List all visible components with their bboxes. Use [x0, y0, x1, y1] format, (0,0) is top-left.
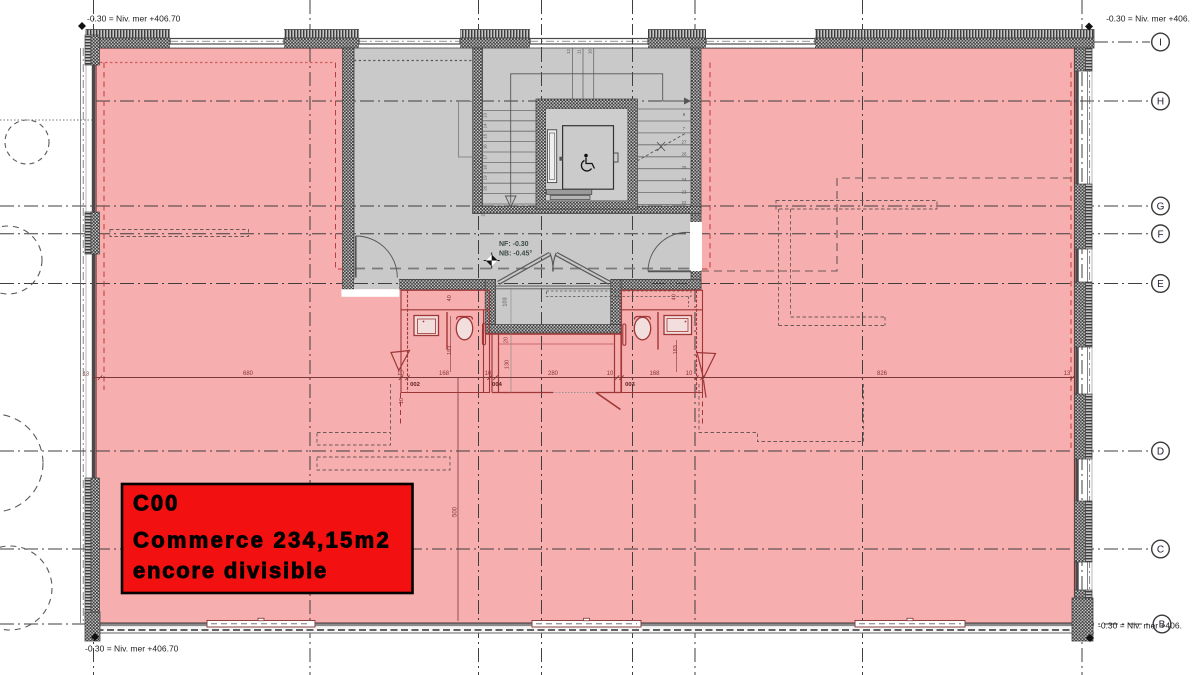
svg-text:20: 20 — [483, 185, 488, 190]
svg-text:11: 11 — [577, 49, 582, 54]
svg-text:NB: -0.45°: NB: -0.45° — [499, 250, 532, 258]
svg-text:183: 183 — [447, 346, 453, 355]
svg-text:G: G — [1157, 202, 1165, 213]
svg-text:E: E — [1157, 279, 1164, 290]
svg-text:10: 10 — [588, 49, 593, 54]
svg-text:C: C — [1157, 545, 1164, 556]
svg-text:20: 20 — [504, 337, 510, 343]
svg-text:F: F — [1157, 229, 1163, 240]
svg-text:17: 17 — [483, 154, 488, 159]
svg-text:D: D — [1157, 447, 1164, 458]
svg-text:13: 13 — [1064, 371, 1071, 377]
svg-text:002: 002 — [410, 382, 420, 388]
svg-text:encore divisible: encore divisible — [133, 558, 328, 583]
svg-text:19: 19 — [483, 175, 488, 180]
svg-text:280: 280 — [548, 371, 559, 377]
svg-text:004: 004 — [492, 382, 502, 388]
svg-text:22: 22 — [682, 200, 687, 205]
svg-text:18: 18 — [483, 165, 488, 170]
svg-text:13: 13 — [483, 113, 488, 118]
svg-text:21: 21 — [481, 211, 486, 216]
svg-text:16: 16 — [483, 144, 488, 149]
svg-text:12: 12 — [566, 49, 571, 54]
svg-text:10: 10 — [397, 371, 404, 377]
svg-text:168: 168 — [439, 371, 450, 377]
svg-text:26: 26 — [682, 151, 687, 156]
svg-text:15: 15 — [483, 133, 488, 138]
svg-text:183: 183 — [673, 345, 679, 354]
svg-text:130: 130 — [505, 360, 511, 369]
svg-text:27: 27 — [682, 140, 687, 145]
svg-text:Commerce 234,15m2: Commerce 234,15m2 — [133, 528, 391, 553]
svg-text:500: 500 — [452, 506, 458, 517]
svg-text:168: 168 — [649, 371, 660, 377]
svg-text:NF: -0.30: NF: -0.30 — [499, 241, 529, 248]
svg-text:-0.30 = Niv. mer +406.70: -0.30 = Niv. mer +406.70 — [85, 644, 179, 654]
svg-text:H: H — [1157, 97, 1164, 108]
svg-text:23: 23 — [682, 189, 687, 194]
svg-text:40: 40 — [447, 295, 453, 301]
svg-text:10: 10 — [686, 371, 693, 377]
svg-text:10: 10 — [607, 371, 614, 377]
svg-text:-0.30 = Niv. mer +406.: -0.30 = Niv. mer +406. — [1106, 14, 1190, 24]
svg-text:-0.30 = Niv. mer +406.70: -0.30 = Niv. mer +406.70 — [87, 14, 181, 24]
svg-text:003: 003 — [625, 382, 635, 388]
svg-text:10: 10 — [399, 398, 405, 404]
svg-text:10: 10 — [485, 371, 492, 377]
svg-text:826: 826 — [877, 371, 888, 377]
svg-text:24: 24 — [682, 177, 687, 182]
svg-text:40: 40 — [671, 294, 677, 300]
svg-text:680: 680 — [243, 371, 254, 377]
svg-text:25: 25 — [682, 165, 687, 170]
svg-text:I: I — [1159, 38, 1162, 49]
svg-text:13: 13 — [83, 372, 89, 378]
svg-text:C00: C00 — [133, 491, 179, 516]
svg-text:103: 103 — [503, 297, 509, 306]
svg-text:14: 14 — [483, 123, 488, 128]
svg-text:-0.30 = Niv. mer +406.: -0.30 = Niv. mer +406. — [1098, 621, 1182, 631]
